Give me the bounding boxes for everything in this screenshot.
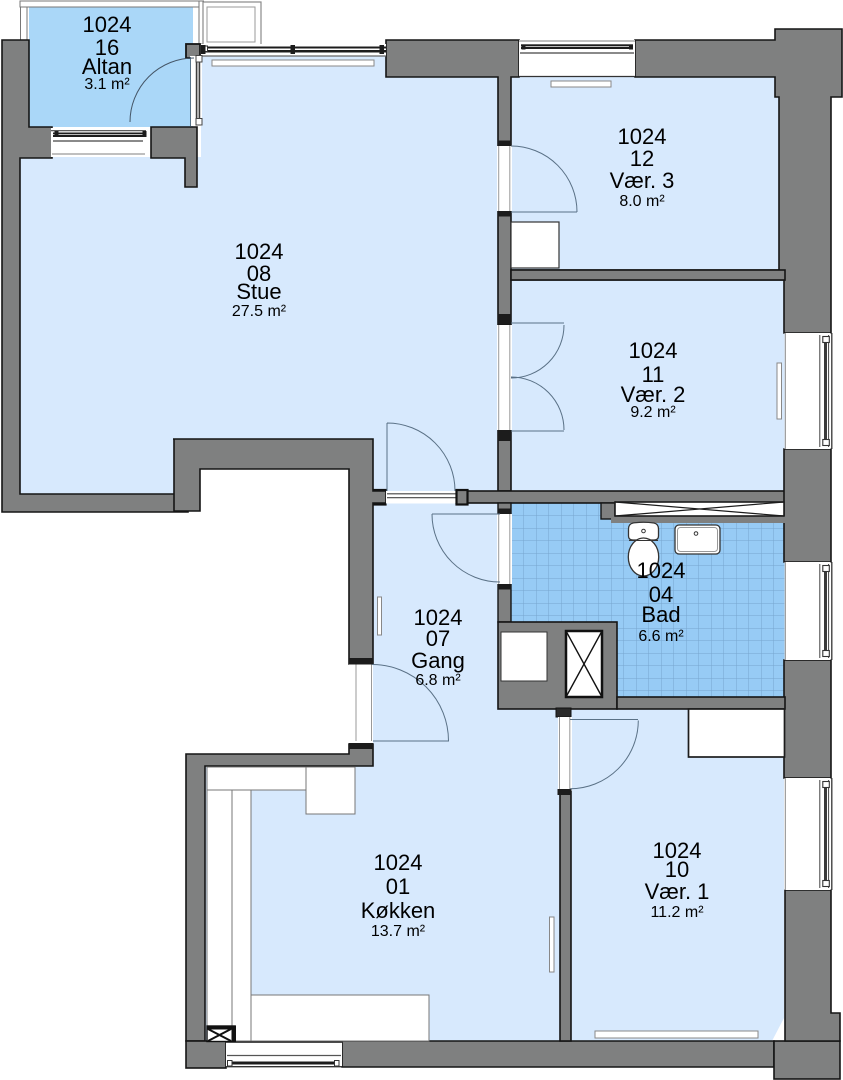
svg-text:6.8 m²: 6.8 m² xyxy=(415,672,461,689)
svg-text:6.6 m²: 6.6 m² xyxy=(638,628,684,645)
svg-text:Køkken: Køkken xyxy=(361,898,436,923)
svg-text:11.2 m²: 11.2 m² xyxy=(650,904,704,921)
svg-text:Vær. 3: Vær. 3 xyxy=(610,168,675,193)
svg-text:01: 01 xyxy=(386,874,410,899)
svg-text:1024: 1024 xyxy=(637,558,686,583)
svg-text:Gang: Gang xyxy=(411,648,465,673)
svg-text:Vær. 1: Vær. 1 xyxy=(645,879,710,904)
svg-text:1024: 1024 xyxy=(374,850,423,875)
svg-text:3.1 m²: 3.1 m² xyxy=(84,76,130,93)
svg-text:8.0 m²: 8.0 m² xyxy=(619,193,665,210)
svg-text:1024: 1024 xyxy=(83,12,132,37)
svg-text:Stue: Stue xyxy=(236,279,281,304)
svg-text:1024: 1024 xyxy=(629,338,678,363)
svg-text:27.5 m²: 27.5 m² xyxy=(232,303,287,320)
svg-text:13.7 m²: 13.7 m² xyxy=(371,923,426,940)
svg-text:Bad: Bad xyxy=(641,602,680,627)
svg-text:9.2 m²: 9.2 m² xyxy=(630,404,676,421)
